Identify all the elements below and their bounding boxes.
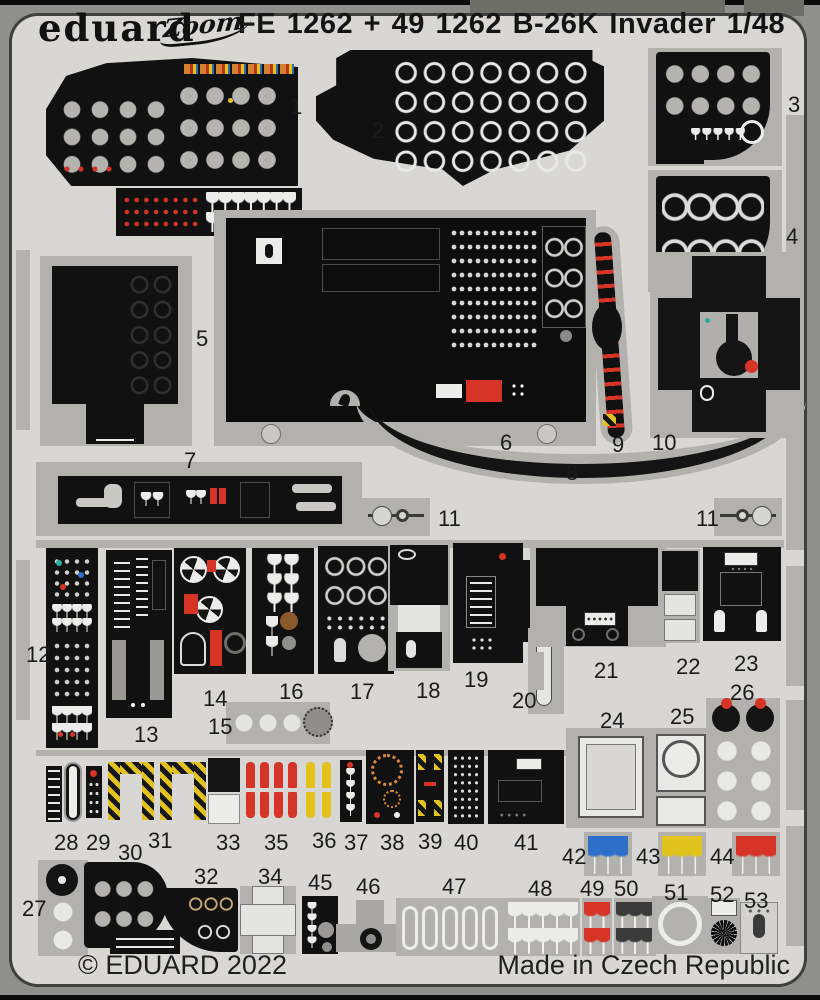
part-31-label: 31 (148, 830, 172, 852)
part-41-label: 41 (514, 832, 538, 854)
part-6-label: 6 (500, 432, 512, 454)
part-52-label: 52 (710, 884, 734, 906)
part-40-label: 40 (454, 832, 478, 854)
part-50-label: 50 (614, 878, 638, 900)
part-37-label: 37 (344, 832, 368, 854)
pe-sheet-photo: eduard Zoom FE 1262 + 49 1262 B-26K Inva… (0, 0, 820, 1000)
part-9-label: 9 (612, 434, 624, 456)
part-27-label: 27 (22, 898, 46, 920)
part-18-label: 18 (416, 680, 440, 702)
part-3-label: 3 (788, 94, 800, 116)
part-30-label: 30 (118, 842, 142, 864)
part-53-shape (753, 914, 765, 938)
part-49-label: 49 (580, 878, 604, 900)
part-17-label: 17 (350, 681, 374, 703)
part-36-label: 36 (312, 830, 336, 852)
part-11-label: 11 (696, 508, 719, 530)
part-11-label: 11 (438, 508, 461, 530)
part-25-label: 25 (670, 706, 694, 728)
part-35-label: 35 (264, 832, 288, 854)
part-19-label: 19 (464, 669, 488, 691)
part-38-label: 38 (380, 832, 404, 854)
copyright-text: © EDUARD 2022 (78, 950, 287, 981)
part-24-label: 24 (600, 710, 624, 732)
part-48-label: 48 (528, 878, 552, 900)
part-34-label: 34 (258, 866, 282, 888)
part-14-label: 14 (203, 688, 227, 710)
part-39-label: 39 (418, 831, 442, 853)
part-45-label: 45 (308, 872, 332, 894)
part-10-label: 10 (652, 432, 676, 454)
part-42-label: 42 (562, 846, 586, 868)
part-33-label: 33 (216, 832, 240, 854)
part-46-label: 46 (356, 876, 380, 898)
part-32-label: 32 (194, 866, 218, 888)
part-29-label: 29 (86, 832, 110, 854)
sheet-title: FE 1262 + 49 1262 B-26K Invader 1/48 (238, 8, 785, 41)
parts-canvas: 1234567891011111213141516171819202122232… (0, 0, 820, 1000)
part-23-label: 23 (734, 653, 758, 675)
part-7-label: 7 (184, 450, 196, 472)
part-1-label: 1 (290, 96, 302, 118)
origin-text: Made in Czech Republic (497, 950, 790, 981)
part-4-label: 4 (786, 226, 798, 248)
part-53-label: 53 (744, 890, 768, 912)
part-43-label: 43 (636, 846, 660, 868)
part-44-label: 44 (710, 846, 734, 868)
part-20-label: 20 (512, 690, 536, 712)
part-47-label: 47 (442, 876, 466, 898)
part-15-label: 15 (208, 716, 232, 738)
part-16-label: 16 (279, 681, 303, 703)
part-28-label: 28 (54, 832, 78, 854)
part-26-label: 26 (730, 682, 754, 704)
part-12-label: 12 (26, 644, 50, 666)
part-2-label: 2 (372, 120, 384, 142)
part-21-label: 21 (594, 660, 618, 682)
part-5-label: 5 (196, 328, 208, 350)
part-13-label: 13 (134, 724, 158, 746)
part-51-label: 51 (664, 882, 688, 904)
part-22-label: 22 (676, 656, 700, 678)
part-8-label: 8 (566, 462, 578, 484)
